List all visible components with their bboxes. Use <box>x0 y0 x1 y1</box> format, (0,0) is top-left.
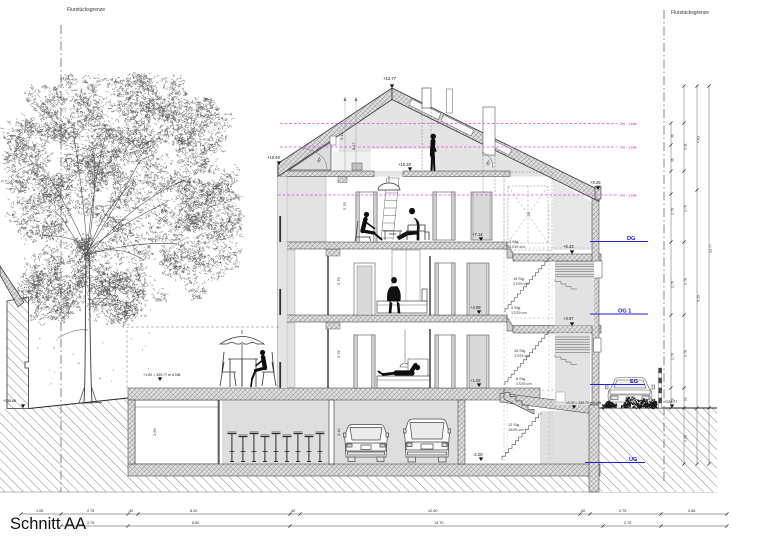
svg-text:+338.66: +338.66 <box>3 399 16 403</box>
svg-text:19/25 cm: 19/25 cm <box>508 428 524 432</box>
svg-text:2.75: 2.75 <box>87 521 94 525</box>
svg-text:-2.28: -2.28 <box>473 452 483 457</box>
svg-text:12.90: 12.90 <box>428 509 438 513</box>
svg-text:OG 1: OG 1 <box>618 309 631 315</box>
svg-text:2.76: 2.76 <box>336 349 341 358</box>
svg-text:DG: DG <box>627 236 635 242</box>
svg-text:18: 18 <box>684 397 688 401</box>
svg-text:2.60: 2.60 <box>152 427 157 436</box>
svg-text:17/29 cm: 17/29 cm <box>511 311 527 315</box>
svg-text:2.68: 2.68 <box>688 509 695 513</box>
svg-text:3 Stg.: 3 Stg. <box>509 240 519 244</box>
svg-text:+6.43: +6.43 <box>563 244 574 249</box>
svg-text:+3.97: +3.97 <box>563 316 574 321</box>
svg-text:2.76: 2.76 <box>684 350 688 357</box>
svg-text:+7.14: +7.14 <box>472 232 483 237</box>
svg-text:17/29 cm: 17/29 cm <box>514 354 530 358</box>
svg-text:2.76: 2.76 <box>684 205 688 212</box>
svg-text:3.40: 3.40 <box>336 427 341 436</box>
svg-text:+10.40: +10.40 <box>267 155 281 160</box>
svg-text:2.75: 2.75 <box>624 521 631 525</box>
svg-text:17/29 cm: 17/29 cm <box>513 282 529 286</box>
svg-text:9.11: 9.11 <box>339 132 344 140</box>
svg-text:3.11: 3.11 <box>684 143 688 150</box>
svg-text:+1.02: +1.02 <box>470 378 481 383</box>
svg-text:1m - Linie: 1m - Linie <box>620 146 637 150</box>
svg-text:9.25: 9.25 <box>697 295 701 302</box>
svg-text:Flurstücksgrenze: Flurstücksgrenze <box>67 7 105 13</box>
svg-text:+1.02 = 339.77 m ü.NN: +1.02 = 339.77 m ü.NN <box>143 373 181 377</box>
svg-text:1.05: 1.05 <box>36 509 43 513</box>
svg-text:13.77: 13.77 <box>709 244 713 253</box>
svg-text:17/29 cm: 17/29 cm <box>516 382 532 386</box>
svg-text:2.75: 2.75 <box>87 509 94 513</box>
svg-text:2.28: 2.28 <box>684 435 688 442</box>
svg-text:+13.77: +13.77 <box>383 76 397 81</box>
svg-text:9 Stg.: 9 Stg. <box>511 306 521 310</box>
svg-text:Flurstücksgrenze: Flurstücksgrenze <box>671 10 709 16</box>
svg-text:4.63: 4.63 <box>697 136 701 143</box>
svg-text:8 Stg.: 8 Stg. <box>516 377 526 381</box>
svg-text:2.76: 2.76 <box>671 353 675 360</box>
svg-text:EG: EG <box>630 379 638 385</box>
svg-text:2.76: 2.76 <box>336 276 341 285</box>
svg-text:2m - Linie: 2m - Linie <box>620 122 637 126</box>
svg-text:36: 36 <box>671 158 675 162</box>
svg-text:26: 26 <box>527 212 531 216</box>
svg-text:+10.20: +10.20 <box>398 162 412 167</box>
svg-text:12 Stg.: 12 Stg. <box>508 423 520 427</box>
svg-text:±0.00 = 339.75 m ü.NN: ±0.00 = 339.75 m ü.NN <box>566 401 602 405</box>
svg-text:+9.25: +9.25 <box>590 180 601 185</box>
svg-text:17/29 cm: 17/29 cm <box>509 245 525 249</box>
svg-text:Schnitt AA: Schnitt AA <box>10 515 86 533</box>
svg-text:2.76: 2.76 <box>342 201 347 210</box>
svg-text:18: 18 <box>671 398 675 402</box>
svg-text:2.76: 2.76 <box>671 281 675 288</box>
svg-text:.40: .40 <box>128 509 133 513</box>
svg-text:2.76: 2.76 <box>671 208 675 215</box>
svg-text:.40: .40 <box>580 509 585 513</box>
svg-text:15 Stg.: 15 Stg. <box>513 277 525 281</box>
svg-text:36: 36 <box>671 134 675 138</box>
svg-text:8.17: 8.17 <box>351 141 356 150</box>
svg-text:+4.09: +4.09 <box>470 305 481 310</box>
svg-text:6.60: 6.60 <box>192 521 199 525</box>
svg-text:2.76: 2.76 <box>684 278 688 285</box>
svg-text:13.70: 13.70 <box>434 521 444 525</box>
svg-text:2.75: 2.75 <box>619 509 626 513</box>
svg-text:2m - Linie: 2m - Linie <box>620 194 637 198</box>
svg-text:UG: UG <box>629 457 637 463</box>
svg-text:15 Stg.: 15 Stg. <box>514 349 526 353</box>
svg-text:.40: .40 <box>290 509 295 513</box>
svg-text:6.20: 6.20 <box>190 509 197 513</box>
